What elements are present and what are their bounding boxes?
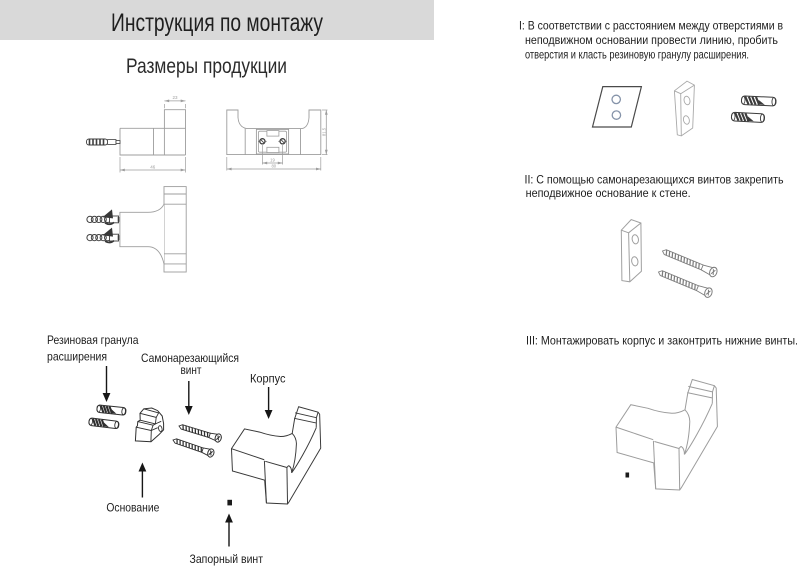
svg-text:19: 19 [270,158,275,163]
svg-text:отверстия и класть резиновую г: отверстия и класть резиновую гранулу рас… [525,48,749,62]
svg-text:Запорный винт: Запорный винт [190,553,264,566]
svg-text:I: В соответствии с расстояние: I: В соответствии с расстоянием между от… [519,19,783,33]
svg-text:II: С помощью самонарезающихся: II: С помощью самонарезающихся винтов за… [525,173,784,187]
svg-text:Резиновая гранула: Резиновая гранула [47,334,139,347]
svg-text:Размеры продукции: Размеры продукции [126,55,287,78]
svg-text:Инструкция по монтажу: Инструкция по монтажу [111,9,323,37]
svg-text:81.5: 81.5 [322,127,327,136]
svg-text:46: 46 [150,165,156,170]
svg-text:Основание: Основание [106,501,159,514]
svg-text:Корпус: Корпус [250,373,286,386]
svg-text:неподвижное основание к стене.: неподвижное основание к стене. [526,186,691,200]
svg-text:винт: винт [181,364,203,377]
svg-text:неподвижном основании провести: неподвижном основании провести линию, пр… [525,33,778,47]
svg-text:III: Монтажировать корпус и за: III: Монтажировать корпус и законтрить н… [526,334,798,348]
svg-text:расширения: расширения [47,351,107,364]
svg-text:23: 23 [172,95,178,100]
svg-text:80: 80 [271,164,276,169]
